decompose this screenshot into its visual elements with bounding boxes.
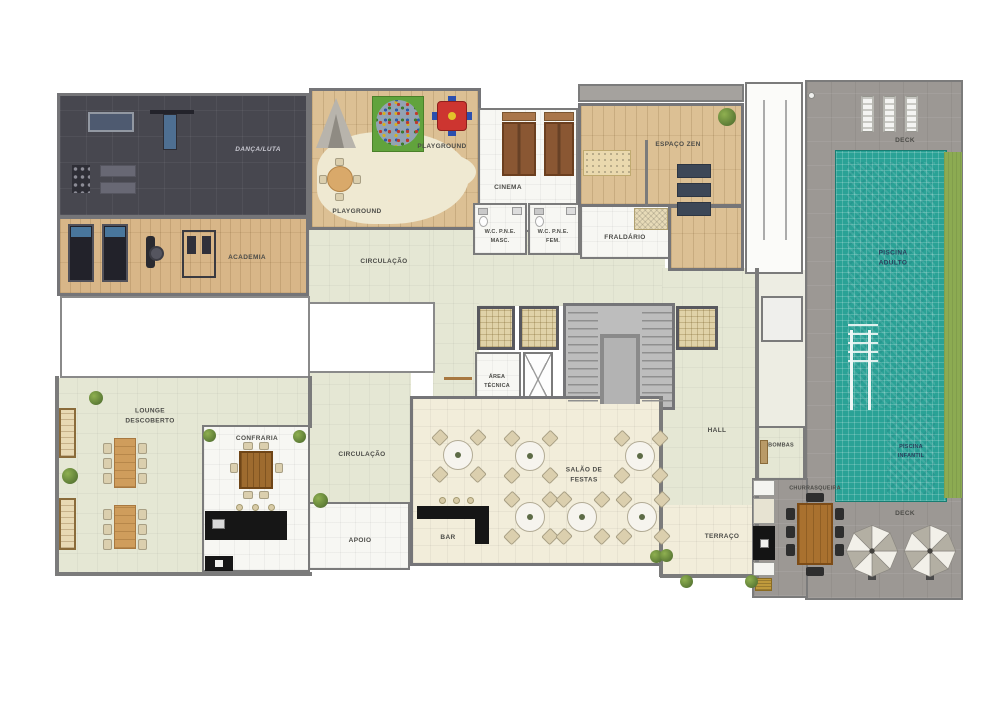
room-label-academia: ACADEMIA	[228, 253, 266, 263]
circulation-lower-floor	[309, 373, 411, 505]
teepee-tent-fold	[328, 114, 344, 148]
room-label-deck-top: DECK	[895, 136, 915, 146]
umbrella-icon	[845, 524, 899, 578]
chair	[103, 443, 112, 454]
room-label-wc-masc: W.C. P.N.E.MASC.	[485, 228, 516, 246]
barbecue-counter	[753, 498, 775, 524]
round-table	[565, 500, 599, 534]
plant	[745, 575, 758, 588]
wc-fem-line1: W.C. P.N.E.	[538, 228, 569, 237]
chair	[103, 509, 112, 520]
elevator	[519, 306, 559, 350]
ramp-rail	[785, 100, 787, 240]
round-table	[441, 438, 475, 472]
round-table	[623, 439, 657, 473]
room-label-circulacao-inf: CIRCULAÇÃO	[338, 450, 385, 460]
exercise-mat	[100, 165, 136, 177]
playground-path	[372, 150, 476, 194]
adult-pool-water	[847, 162, 935, 408]
sink	[566, 207, 576, 215]
room-label-bar: BAR	[440, 533, 455, 543]
room-label-lounge: LOUNGEDESCOBERTO	[125, 407, 174, 428]
room-label-circulacao-sup: CIRCULAÇÃO	[360, 257, 407, 267]
plant	[293, 430, 306, 443]
room-label-danca-luta: DANÇA/LUTA	[235, 145, 281, 155]
salao-line1: SALÃO DE	[566, 466, 602, 476]
dumbbell-rack	[72, 165, 90, 193]
chair	[786, 508, 795, 520]
room-label-area-tecnica: ÁREATÉCNICA	[484, 373, 510, 391]
grass-strip	[944, 152, 962, 498]
room-label-playground-upper: PLAYGROUND	[417, 142, 466, 152]
lounge-line1: LOUNGE	[125, 407, 174, 417]
bar-stool	[467, 497, 474, 504]
sun-lounger	[883, 96, 896, 132]
stair-flight	[642, 312, 672, 404]
void-opening	[60, 296, 310, 378]
void-opening	[308, 302, 435, 373]
zen-mat	[677, 183, 711, 197]
chair	[806, 493, 824, 502]
confraria-room	[202, 425, 310, 572]
chair	[806, 567, 824, 576]
chair	[835, 508, 844, 520]
zen-mat	[677, 202, 711, 216]
cinema-headrest	[502, 112, 536, 121]
exercise-bike-wheel	[149, 246, 164, 261]
ramp-corridor	[745, 82, 803, 274]
bar-counter	[475, 506, 489, 544]
activity-seat	[448, 131, 456, 136]
chair	[786, 544, 795, 556]
wc-masc-line1: W.C. P.N.E.	[485, 228, 516, 237]
room-label-hall: HALL	[708, 426, 727, 436]
chair	[103, 473, 112, 484]
room-label-salao: SALÃO DEFESTAS	[566, 466, 602, 487]
salao-line2: FESTAS	[566, 476, 602, 486]
room-label-deck-bottom: DECK	[895, 509, 915, 519]
room-label-piscina-infantil: PISCINAINFANTIL	[898, 443, 924, 461]
wc-masc-line2: MASC.	[485, 237, 516, 246]
bar-stool	[453, 497, 460, 504]
ramp-rail	[763, 100, 765, 240]
appliance-door	[215, 560, 223, 567]
kids-chair	[319, 175, 327, 184]
treadmill-console	[71, 227, 91, 237]
plant	[660, 549, 673, 562]
zen-balcony	[578, 84, 744, 102]
room-label-piscina-adulto: PISCINAADULTO	[879, 249, 908, 270]
plant	[89, 391, 103, 405]
room-label-fraldario: FRALDÁRIO	[604, 233, 645, 243]
deck-light	[808, 92, 815, 99]
technical-bench	[444, 377, 472, 380]
treadmill-console	[105, 227, 125, 237]
barbecue-cabinet	[753, 480, 775, 496]
kids-table	[327, 166, 353, 192]
sun-lounger	[861, 96, 874, 132]
wc-fem-line2: FEM.	[538, 237, 569, 246]
room-label-espaco-zen: ESPAÇO ZEN	[655, 140, 700, 150]
hall-floor	[662, 268, 757, 508]
round-table	[513, 439, 547, 473]
zen-mat	[677, 164, 711, 178]
stool	[252, 504, 259, 511]
plant	[313, 493, 328, 508]
barbecue-table	[797, 503, 833, 565]
chair	[138, 443, 147, 454]
confraria-table	[239, 451, 273, 489]
pump-shelf	[760, 440, 768, 464]
weight-station-pad	[187, 236, 196, 254]
bar-stool	[439, 497, 446, 504]
cinema-sofa	[502, 122, 536, 176]
chair	[138, 473, 147, 484]
stool	[236, 504, 243, 511]
chair	[786, 526, 795, 538]
floor-plan: DANÇA/LUTA ACADEMIA PLAYGROUND PLAYGROUN…	[0, 0, 1000, 707]
activity-table-center	[448, 112, 456, 120]
chair	[275, 463, 283, 473]
plant	[718, 108, 736, 126]
room-label-churrasqueira: CHURRASQUEIRA	[789, 485, 841, 494]
chair	[103, 458, 112, 469]
deck-stairs	[761, 296, 803, 342]
toilet-bowl	[535, 216, 544, 227]
sun-lounger	[905, 96, 918, 132]
chair	[138, 524, 147, 535]
toilet	[478, 208, 488, 215]
activity-seat	[448, 96, 456, 101]
cinema-sofa	[544, 122, 574, 176]
room-label-playground-lower: PLAYGROUND	[332, 207, 381, 217]
stool	[268, 504, 275, 511]
changing-counter	[634, 208, 668, 230]
toilet-bowl	[479, 216, 488, 227]
chair	[103, 539, 112, 550]
kids-chair	[335, 193, 344, 201]
wall-segment	[645, 140, 648, 206]
activity-seat	[467, 112, 472, 120]
lounge-table	[114, 438, 136, 488]
ball-pit-balls	[376, 100, 420, 146]
grill-sink	[760, 539, 769, 548]
room-label-bombas: BOMBAS	[768, 442, 794, 451]
kids-chair	[353, 175, 361, 184]
elevator	[676, 306, 718, 350]
round-table	[625, 500, 659, 534]
piscina-adulto-line2: ADULTO	[879, 259, 908, 269]
chair	[259, 491, 269, 499]
plant	[203, 429, 216, 442]
activity-seat	[432, 112, 437, 120]
service-corridor	[757, 270, 805, 428]
room-label-cinema: CINEMA	[494, 183, 522, 193]
confraria-sink	[212, 519, 225, 529]
piscina-adulto-line1: PISCINA	[879, 249, 908, 259]
room-label-terraco: TERRAÇO	[705, 532, 740, 542]
chair	[138, 509, 147, 520]
weight-bench	[88, 112, 134, 132]
chair	[138, 458, 147, 469]
lounge-table	[114, 505, 136, 549]
cinema-headrest	[544, 112, 574, 121]
barbecue-cabinet	[753, 562, 775, 576]
pool-rail	[868, 330, 871, 410]
umbrella-icon	[903, 524, 957, 578]
elevator	[477, 306, 515, 350]
piscina-infantil-line2: INFANTIL	[898, 452, 924, 461]
garden-bench	[59, 498, 76, 550]
wall-segment	[308, 376, 312, 428]
stair-core-wall	[600, 334, 640, 404]
barbell-bench	[163, 114, 177, 150]
chair	[835, 526, 844, 538]
garden-bench	[59, 408, 76, 458]
plant	[62, 468, 78, 484]
exercise-mat	[100, 182, 136, 194]
chair	[138, 539, 147, 550]
room-label-apoio: APOIO	[349, 536, 372, 546]
round-table	[513, 500, 547, 534]
weight-station-pad	[202, 236, 211, 254]
area-tecnica-line2: TÉCNICA	[484, 382, 510, 391]
wall-segment	[660, 574, 759, 578]
chair	[230, 463, 238, 473]
toilet	[534, 208, 544, 215]
chair	[835, 544, 844, 556]
plant	[680, 575, 693, 588]
room-label-wc-fem: W.C. P.N.E.FEM.	[538, 228, 569, 246]
sink	[512, 207, 522, 215]
piscina-infantil-line1: PISCINA	[898, 443, 924, 452]
stair-flight	[568, 312, 598, 404]
room-label-confraria: CONFRARIA	[236, 434, 278, 444]
chair	[103, 524, 112, 535]
pool-rail	[850, 330, 853, 410]
lounge-line2: DESCOBERTO	[125, 417, 174, 427]
zen-mat-beige	[583, 150, 631, 176]
wall-segment	[55, 572, 312, 576]
circulation-corridor	[433, 300, 479, 404]
kids-chair	[335, 158, 344, 166]
chair	[243, 491, 253, 499]
area-tecnica-line1: ÁREA	[484, 373, 510, 382]
